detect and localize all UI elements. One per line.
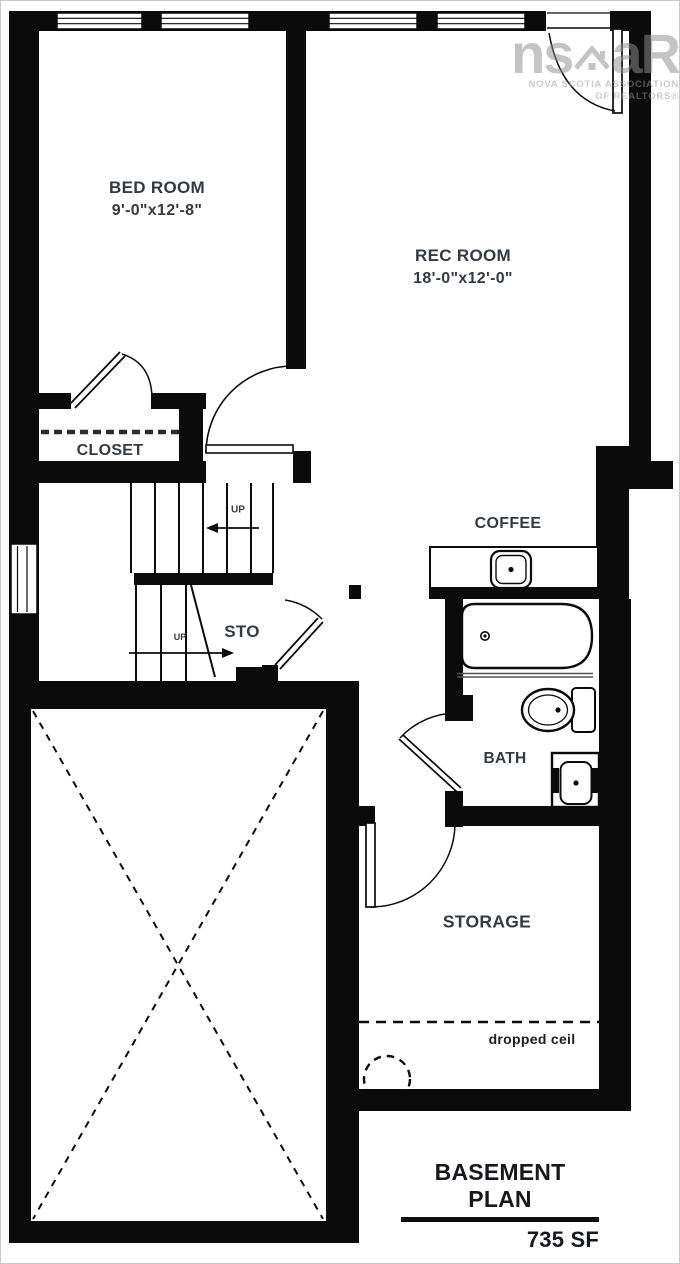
unexcavated-x [33, 711, 323, 1219]
basement-floor-plan: BED ROOM 9'-0"x12'-8" REC ROOM 18'-0"x12… [0, 0, 680, 1264]
up-label-lower: UP [174, 632, 187, 642]
window-top-2 [161, 13, 249, 29]
bedroom-label: BED ROOM [109, 178, 205, 198]
coffee-label: COFFEE [475, 515, 542, 533]
closet-door [70, 352, 152, 408]
up-label-upper: UP [231, 505, 245, 516]
dropped-ceiling-note: dropped ceil [489, 1031, 576, 1047]
rec-room-label: REC ROOM [415, 246, 511, 266]
floorplan-linework [1, 1, 679, 1263]
title-block: BASEMENT PLAN 735 SF [401, 1159, 599, 1253]
bedroom-door [206, 366, 293, 453]
window-top-4 [437, 13, 525, 29]
up-arrow-lower [129, 648, 234, 658]
window-top-1 [57, 13, 142, 29]
toilet [522, 688, 595, 732]
window-top-3 [329, 13, 417, 29]
bedroom-dims: 9'-0"x12'-8" [112, 202, 202, 220]
bathtub [457, 604, 593, 677]
bar-sink [491, 551, 531, 588]
windows [11, 13, 525, 614]
title-underline [401, 1217, 599, 1222]
vanity-sink [552, 753, 599, 807]
sto-door [275, 600, 323, 669]
rec-room-dims: 18'-0"x12'-0" [413, 270, 513, 288]
storage-door [366, 823, 455, 907]
stair-divider-wall [134, 573, 273, 585]
closet-label: CLOSET [77, 442, 144, 460]
storage-label: STORAGE [443, 912, 531, 933]
bath-door [399, 713, 461, 792]
plan-title: BASEMENT PLAN [401, 1159, 599, 1213]
bath-label: BATH [483, 750, 526, 768]
window-left [11, 544, 37, 614]
sto-label: STO [224, 622, 260, 642]
plan-area: 735 SF [401, 1227, 599, 1253]
